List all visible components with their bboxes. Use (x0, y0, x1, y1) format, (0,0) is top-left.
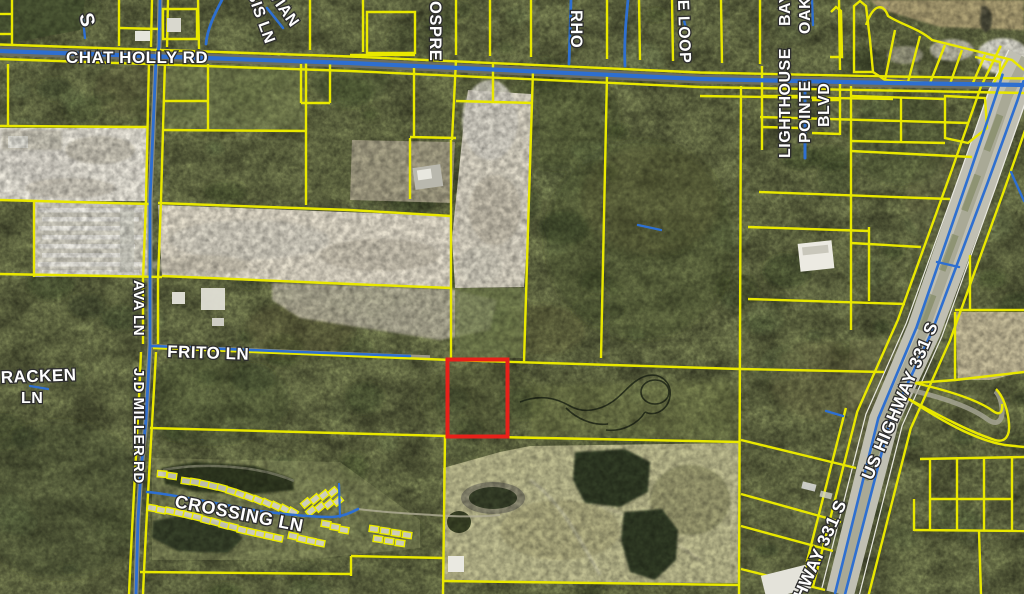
svg-text:LIGHTHOUSE: LIGHTHOUSE (777, 48, 794, 158)
svg-text:J.D MILLER RD: J.D MILLER RD (130, 368, 147, 484)
svg-text:RACKEN: RACKEN (0, 365, 76, 387)
svg-text:POINTE: POINTE (797, 80, 814, 143)
svg-text:AVA LN: AVA LN (130, 280, 147, 336)
svg-text:CHAT HOLLY RD: CHAT HOLLY RD (66, 48, 208, 67)
svg-text:OAKS: OAKS (797, 0, 814, 34)
svg-text:OSPRE: OSPRE (426, 1, 444, 61)
svg-text:RHO: RHO (567, 10, 585, 48)
svg-text:BAY: BAY (777, 0, 794, 26)
svg-text:LN: LN (21, 390, 43, 407)
svg-text:BLVD: BLVD (816, 83, 833, 127)
svg-text:E LOOP: E LOOP (674, 0, 693, 64)
svg-text:FRITO LN: FRITO LN (167, 342, 250, 364)
